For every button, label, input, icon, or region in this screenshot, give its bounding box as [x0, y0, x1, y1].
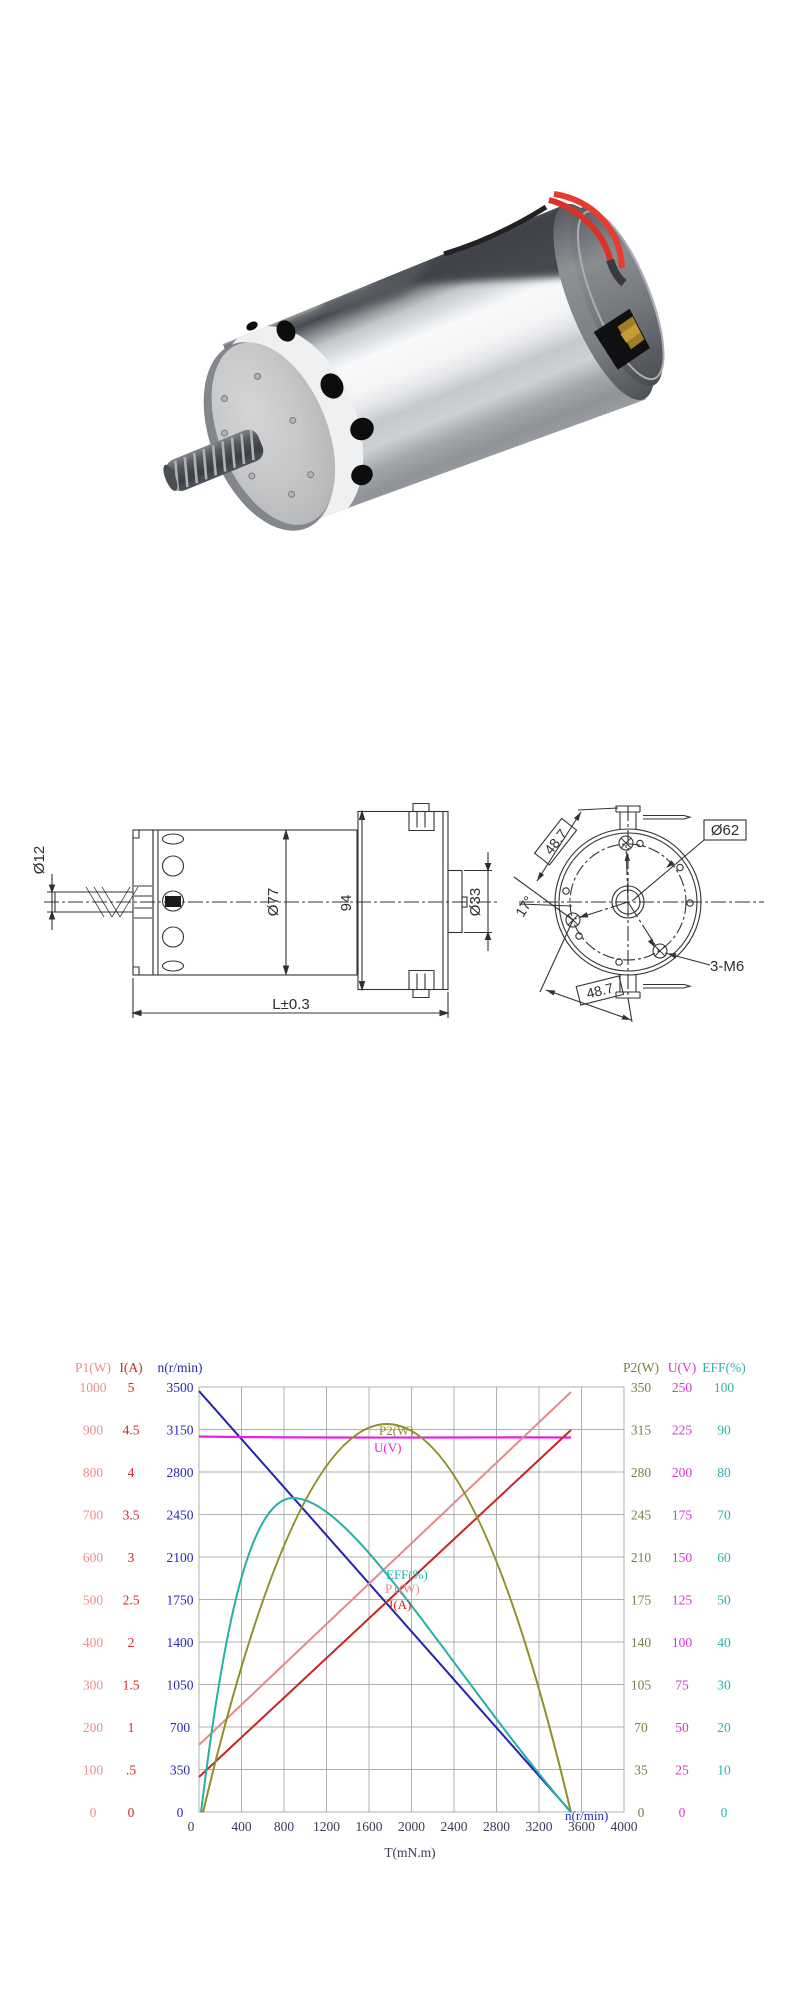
svg-text:Ø12: Ø12	[31, 846, 48, 874]
svg-text:1.5: 1.5	[123, 1678, 140, 1693]
svg-text:U(V): U(V)	[374, 1440, 401, 1455]
svg-text:0: 0	[90, 1805, 97, 1820]
svg-text:3.5: 3.5	[123, 1508, 140, 1523]
svg-text:600: 600	[83, 1550, 104, 1565]
svg-text:50: 50	[717, 1593, 731, 1608]
svg-text:30: 30	[717, 1678, 731, 1693]
svg-text:1400: 1400	[167, 1635, 194, 1650]
svg-text:2000: 2000	[398, 1819, 425, 1834]
svg-text:I(A): I(A)	[389, 1597, 411, 1612]
svg-text:100: 100	[83, 1763, 104, 1778]
svg-text:T(mN.m): T(mN.m)	[384, 1845, 435, 1860]
svg-text:0: 0	[638, 1805, 645, 1820]
svg-text:300: 300	[83, 1678, 104, 1693]
svg-text:75: 75	[675, 1678, 689, 1693]
svg-text:0: 0	[679, 1805, 686, 1820]
svg-text:1750: 1750	[167, 1593, 194, 1608]
svg-text:25: 25	[675, 1763, 689, 1778]
svg-text:Ø62: Ø62	[711, 822, 739, 839]
svg-text:P2(W): P2(W)	[379, 1423, 414, 1438]
svg-text:3: 3	[128, 1550, 135, 1565]
svg-text:250: 250	[672, 1380, 693, 1395]
svg-text:2100: 2100	[167, 1550, 194, 1565]
svg-text:4.5: 4.5	[123, 1423, 140, 1438]
svg-text:2450: 2450	[167, 1508, 194, 1523]
svg-text:200: 200	[672, 1465, 693, 1480]
svg-text:n(r/min): n(r/min)	[565, 1808, 608, 1823]
svg-text:80: 80	[717, 1465, 731, 1480]
svg-text:1000: 1000	[80, 1380, 107, 1395]
svg-text:245: 245	[631, 1508, 652, 1523]
svg-text:400: 400	[83, 1635, 104, 1650]
svg-text:2: 2	[128, 1635, 135, 1650]
svg-text:100: 100	[714, 1380, 735, 1395]
svg-text:U(V): U(V)	[668, 1360, 697, 1375]
svg-text:400: 400	[231, 1819, 252, 1834]
svg-text:0: 0	[177, 1805, 184, 1820]
svg-text:900: 900	[83, 1423, 104, 1438]
svg-text:800: 800	[274, 1819, 295, 1834]
svg-text:40: 40	[717, 1635, 731, 1650]
svg-text:Ø33: Ø33	[467, 888, 484, 916]
svg-text:1050: 1050	[167, 1678, 194, 1693]
svg-text:0: 0	[721, 1805, 728, 1820]
svg-text:125: 125	[672, 1593, 693, 1608]
svg-text:EFF(%): EFF(%)	[386, 1567, 428, 1582]
svg-text:3200: 3200	[526, 1819, 553, 1834]
svg-text:350: 350	[631, 1380, 652, 1395]
svg-text:4000: 4000	[611, 1819, 638, 1834]
svg-text:175: 175	[631, 1593, 652, 1608]
svg-text:10: 10	[717, 1763, 731, 1778]
svg-text:L±0.3: L±0.3	[272, 996, 309, 1013]
svg-text:4: 4	[128, 1465, 135, 1480]
svg-text:60: 60	[717, 1550, 731, 1565]
svg-text:3500: 3500	[167, 1380, 194, 1395]
svg-text:P2(W): P2(W)	[623, 1360, 659, 1375]
svg-text:48.7: 48.7	[541, 826, 571, 857]
svg-text:105: 105	[631, 1678, 652, 1693]
svg-text:210: 210	[631, 1550, 652, 1565]
svg-text:2800: 2800	[167, 1465, 194, 1480]
svg-text:n(r/min): n(r/min)	[158, 1360, 203, 1375]
svg-text:700: 700	[170, 1720, 191, 1735]
svg-text:3-M6: 3-M6	[710, 958, 744, 975]
svg-text:90: 90	[717, 1423, 731, 1438]
svg-text:48.7: 48.7	[585, 979, 616, 1001]
svg-text:70: 70	[634, 1720, 648, 1735]
svg-text:5: 5	[128, 1380, 135, 1395]
svg-text:35: 35	[634, 1763, 648, 1778]
svg-text:0: 0	[188, 1819, 195, 1834]
svg-text:100: 100	[672, 1635, 693, 1650]
svg-text:500: 500	[83, 1593, 104, 1608]
svg-text:200: 200	[83, 1720, 104, 1735]
svg-text:150: 150	[672, 1550, 693, 1565]
svg-text:1: 1	[128, 1720, 135, 1735]
svg-text:20: 20	[717, 1720, 731, 1735]
svg-text:140: 140	[631, 1635, 652, 1650]
svg-text:2800: 2800	[483, 1819, 510, 1834]
svg-text:I(A): I(A)	[119, 1360, 142, 1375]
svg-text:50: 50	[675, 1720, 689, 1735]
svg-text:.5: .5	[126, 1763, 136, 1778]
svg-text:2400: 2400	[441, 1819, 468, 1834]
svg-text:1600: 1600	[356, 1819, 383, 1834]
svg-text:17°: 17°	[512, 893, 537, 919]
svg-text:225: 225	[672, 1423, 693, 1438]
svg-text:94: 94	[338, 895, 355, 912]
svg-text:315: 315	[631, 1423, 652, 1438]
svg-text:175: 175	[672, 1508, 693, 1523]
svg-text:700: 700	[83, 1508, 104, 1523]
svg-text:EFF(%): EFF(%)	[702, 1360, 746, 1375]
svg-text:1200: 1200	[313, 1819, 340, 1834]
svg-text:800: 800	[83, 1465, 104, 1480]
svg-text:70: 70	[717, 1508, 731, 1523]
svg-text:P1(W): P1(W)	[75, 1360, 111, 1375]
svg-text:2.5: 2.5	[123, 1593, 140, 1608]
svg-text:280: 280	[631, 1465, 652, 1480]
svg-text:0: 0	[128, 1805, 135, 1820]
svg-text:P1(W): P1(W)	[385, 1581, 420, 1596]
svg-text:Ø77: Ø77	[265, 888, 282, 916]
svg-text:3150: 3150	[167, 1423, 194, 1438]
svg-text:350: 350	[170, 1763, 191, 1778]
